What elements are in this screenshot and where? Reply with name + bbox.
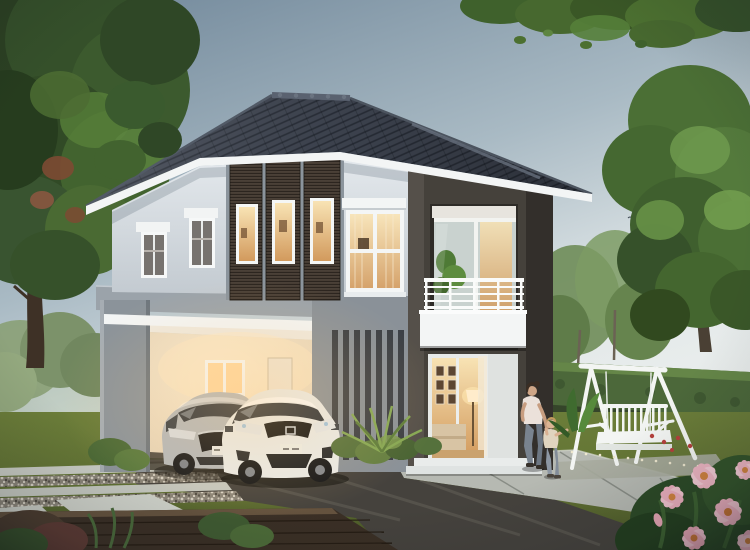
vignette: [0, 0, 750, 550]
rendering-canvas: [0, 0, 750, 550]
scene-house-rendering: [0, 0, 750, 550]
